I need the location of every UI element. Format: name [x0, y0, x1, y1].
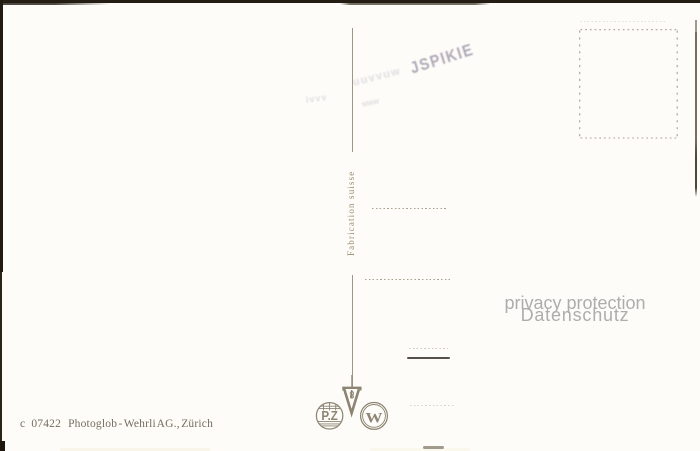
svg-text:W: W	[366, 410, 383, 426]
svg-text:P.Z: P.Z	[321, 409, 338, 423]
